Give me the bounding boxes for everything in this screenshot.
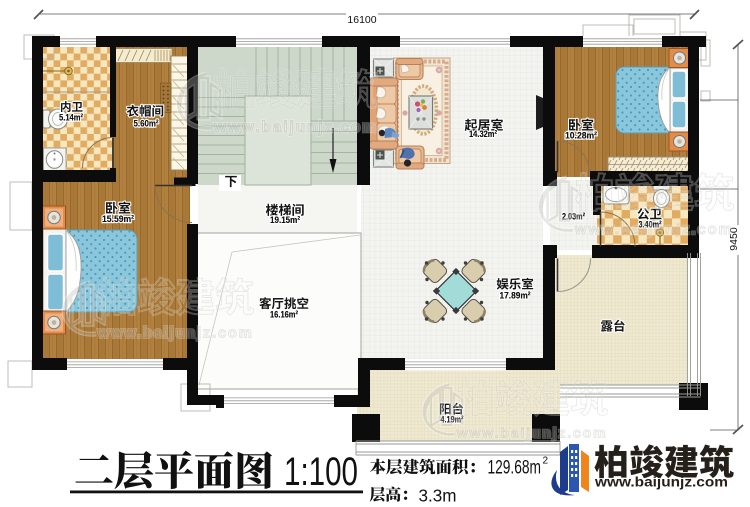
svg-text:3.3m: 3.3m xyxy=(419,486,457,506)
svg-text:5.60m²: 5.60m² xyxy=(134,119,159,130)
svg-text:129.68m: 129.68m xyxy=(488,458,542,479)
svg-text:2: 2 xyxy=(543,456,549,467)
svg-text:14.32m²: 14.32m² xyxy=(469,129,497,140)
svg-text:19.15m²: 19.15m² xyxy=(270,215,300,226)
svg-text:16.16m²: 16.16m² xyxy=(270,310,298,321)
svg-text:17.89m²: 17.89m² xyxy=(500,291,531,302)
svg-text:5.14m²: 5.14m² xyxy=(59,113,83,124)
svg-text:15.59m²: 15.59m² xyxy=(102,214,134,225)
svg-text:16100: 16100 xyxy=(347,14,376,26)
svg-text:www.baijunjz.com: www.baijunjz.com xyxy=(594,475,728,490)
svg-text:10.28m²: 10.28m² xyxy=(565,131,597,142)
svg-text:1:100: 1:100 xyxy=(284,450,358,494)
